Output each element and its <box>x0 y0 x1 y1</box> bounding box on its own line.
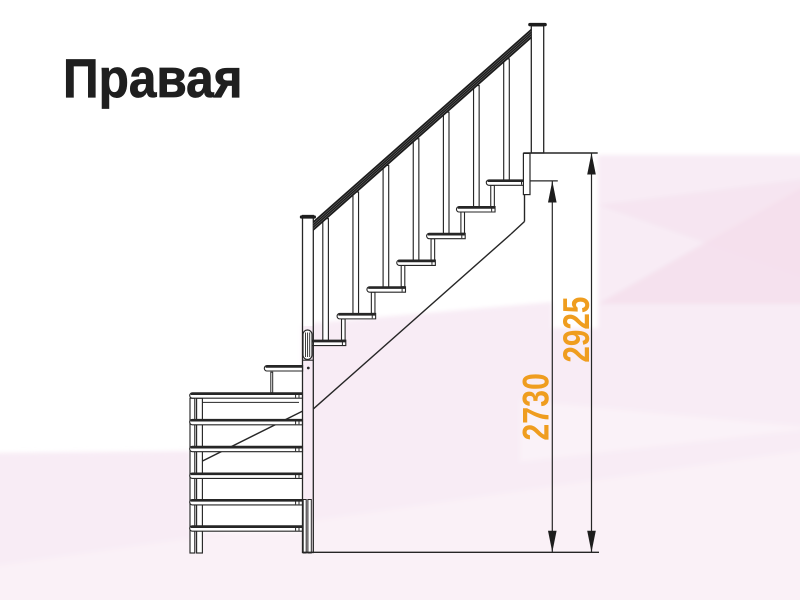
svg-text:2730: 2730 <box>516 373 557 441</box>
svg-text:2925: 2925 <box>556 297 597 363</box>
